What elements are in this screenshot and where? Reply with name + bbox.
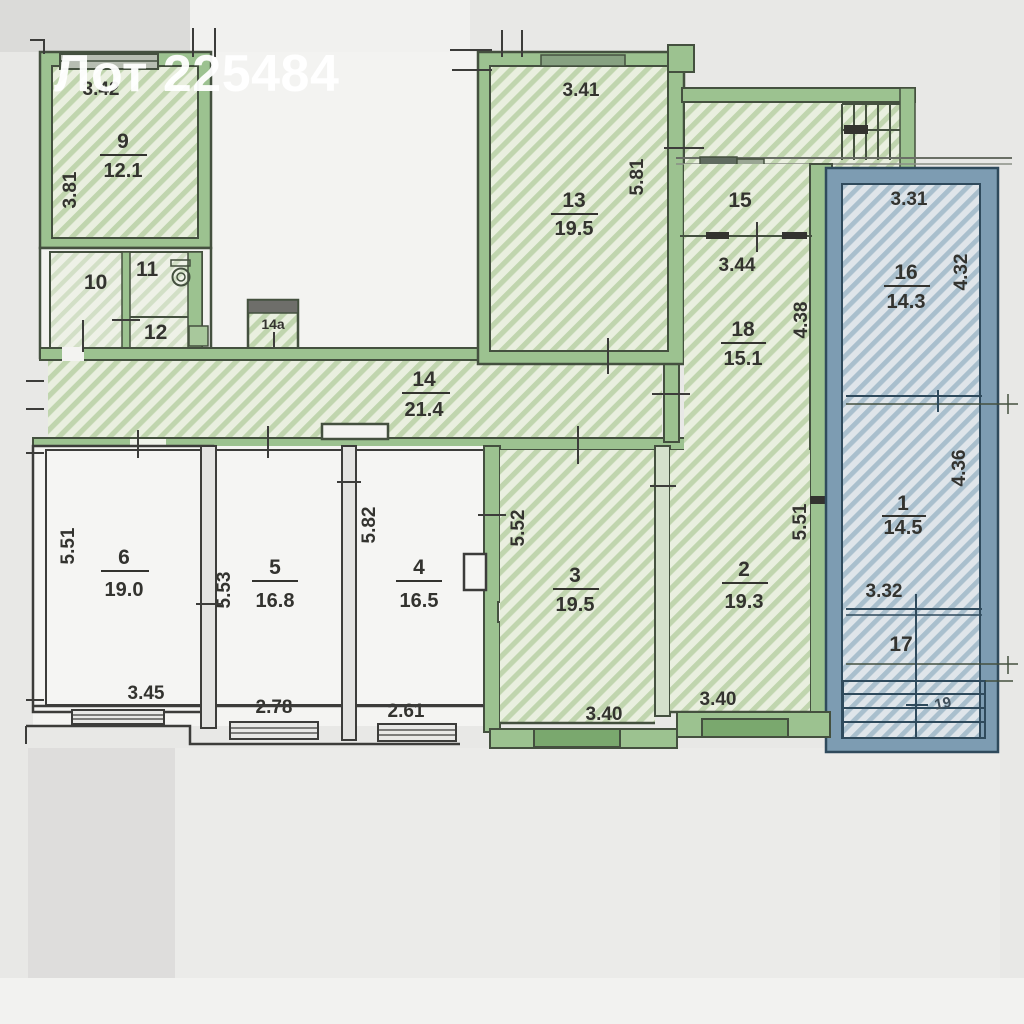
svg-text:5: 5 [269, 556, 281, 579]
svg-text:6: 6 [118, 546, 130, 569]
svg-text:19.5: 19.5 [556, 594, 595, 616]
svg-text:16: 16 [894, 261, 917, 284]
svg-text:14.5: 14.5 [884, 517, 923, 539]
svg-text:5.52: 5.52 [508, 510, 529, 547]
svg-text:2: 2 [738, 558, 750, 581]
svg-text:19.0: 19.0 [105, 579, 144, 601]
svg-text:5.51: 5.51 [790, 503, 811, 540]
svg-text:5.51: 5.51 [58, 527, 79, 564]
svg-text:3.45: 3.45 [128, 683, 165, 704]
svg-text:3.40: 3.40 [700, 689, 737, 710]
svg-text:Лот 225484: Лот 225484 [54, 45, 339, 103]
svg-text:12: 12 [144, 321, 167, 344]
svg-text:15.1: 15.1 [724, 348, 763, 370]
svg-text:5.81: 5.81 [627, 158, 648, 195]
svg-text:17: 17 [889, 633, 912, 656]
svg-text:4.32: 4.32 [951, 254, 972, 291]
svg-text:11: 11 [136, 258, 159, 281]
svg-text:2.61: 2.61 [388, 701, 425, 722]
svg-text:19.3: 19.3 [725, 591, 764, 613]
svg-text:9: 9 [117, 130, 129, 153]
svg-text:14: 14 [412, 368, 436, 391]
svg-text:12.1: 12.1 [104, 160, 143, 182]
svg-text:4.36: 4.36 [949, 450, 970, 487]
svg-text:3: 3 [569, 564, 581, 587]
svg-text:14a: 14a [261, 316, 285, 332]
svg-text:10: 10 [84, 271, 107, 294]
svg-text:13: 13 [562, 189, 585, 212]
svg-text:4: 4 [413, 556, 425, 579]
svg-text:18: 18 [731, 318, 755, 341]
svg-text:1: 1 [897, 492, 909, 515]
svg-text:16.8: 16.8 [256, 590, 295, 612]
svg-text:21.4: 21.4 [405, 399, 445, 421]
svg-text:3.44: 3.44 [719, 255, 756, 276]
svg-text:5.82: 5.82 [359, 507, 380, 544]
svg-text:3.81: 3.81 [60, 171, 81, 208]
svg-text:15: 15 [728, 189, 752, 212]
svg-text:3.41: 3.41 [563, 80, 600, 101]
svg-text:2.78: 2.78 [256, 697, 293, 718]
svg-text:19: 19 [933, 694, 953, 714]
svg-text:14.3: 14.3 [887, 291, 926, 313]
svg-text:3.32: 3.32 [866, 581, 903, 602]
svg-text:19.5: 19.5 [555, 218, 594, 240]
svg-text:16.5: 16.5 [400, 590, 439, 612]
svg-text:3.31: 3.31 [891, 189, 928, 210]
svg-text:5.53: 5.53 [214, 572, 235, 609]
svg-text:4.38: 4.38 [791, 302, 812, 339]
